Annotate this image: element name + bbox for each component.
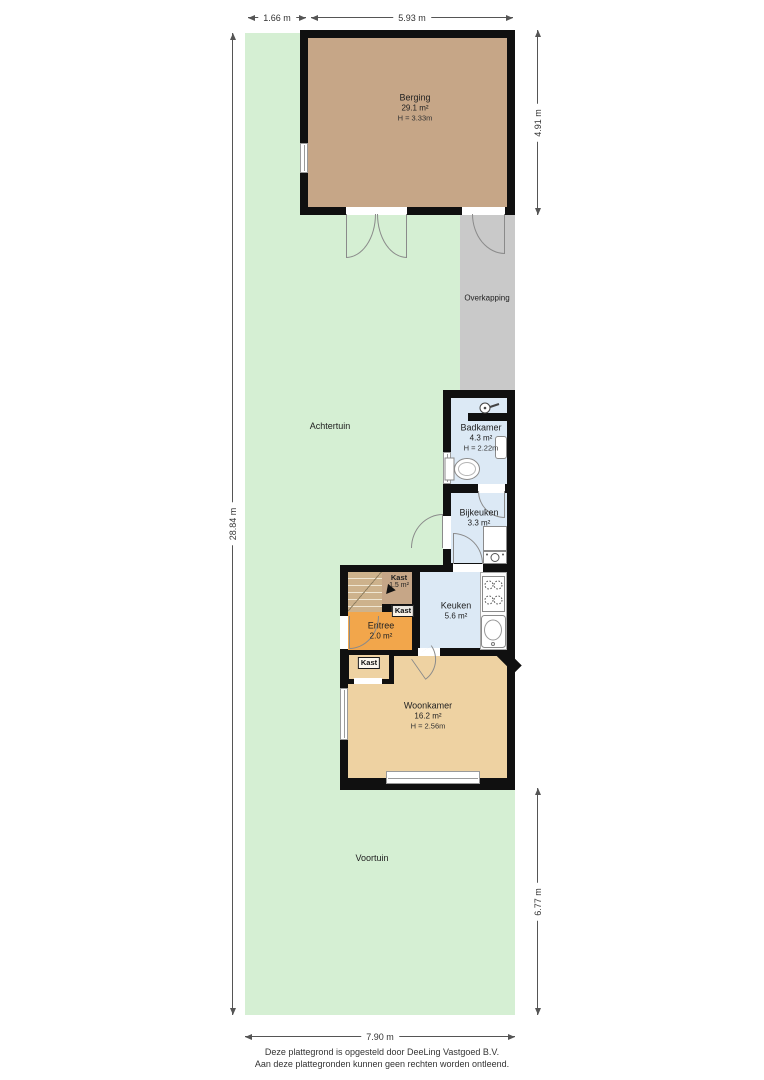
dimension-right-bottom-label: 6.77 m [533, 883, 543, 921]
shower-icon [478, 399, 500, 415]
dimension-top-right: 5.93 m [311, 17, 513, 18]
room-area: 29.1 m² [398, 104, 433, 114]
room-name: Bijkeuken [459, 507, 498, 518]
woonkamer-side-window [340, 688, 348, 740]
footer-disclaimer: Deze plattegrond is opgesteld door DeeLi… [0, 1046, 764, 1070]
floorplan: Berging 29.1 m² H = 3.33m Overkapping Ac… [0, 0, 764, 1080]
room-area: 16.2 m² [404, 712, 452, 722]
room-label-badkamer: Badkamer 4.3 m² H = 2.22m [460, 423, 501, 454]
label-achtertuin: Achtertuin [310, 421, 351, 431]
room-area: 1.5 m² [389, 582, 409, 591]
room-label-bijkeuken: Bijkeuken 3.3 m² [459, 507, 498, 528]
dimension-right-bottom: 6.77 m [537, 788, 538, 1015]
kast-onder-opening [354, 678, 382, 684]
room-label-berging: Berging 29.1 m² H = 3.33m [398, 93, 433, 124]
label-overkapping: Overkapping [464, 294, 509, 303]
dimension-left-label: 28.84 m [228, 503, 238, 546]
berging-window [300, 143, 308, 173]
sink-icon [481, 615, 506, 648]
room-area: 4.3 m² [460, 434, 501, 444]
chip-kast-onder: Kast [358, 657, 380, 669]
room-name: Woonkamer [404, 701, 452, 712]
woonkamer-front-window [386, 771, 480, 784]
chip-kast-midden: Kast [392, 605, 414, 617]
room-area: 2.0 m² [368, 632, 395, 642]
room-height: H = 3.33m [398, 114, 433, 123]
worktop [483, 526, 507, 551]
room-height: H = 2.56m [404, 722, 452, 731]
room-height: H = 2.22m [460, 444, 501, 453]
toilet-icon [444, 454, 482, 484]
dimension-bottom-label: 7.90 m [361, 1032, 399, 1042]
room-label-keuken: Keuken 5.6 m² [441, 600, 472, 621]
dimension-top-right-label: 5.93 m [393, 13, 431, 23]
bijkeuken-keuken-door-gap [453, 564, 483, 572]
staircase [348, 572, 382, 612]
room-name: Berging [398, 93, 433, 104]
dimension-top-left: 1.66 m [248, 17, 306, 18]
dimension-right-top: 4.91 m [537, 30, 538, 215]
dimension-right-top-label: 4.91 m [533, 104, 543, 142]
footer-line1: Deze plattegrond is opgesteld door DeeLi… [0, 1046, 764, 1058]
room-area: 3.3 m² [459, 519, 498, 529]
room-name: Badkamer [460, 423, 501, 434]
room-label-entree: Entree 2.0 m² [368, 620, 395, 641]
entree-front-door-gap [340, 616, 348, 649]
washing-machine-icon [483, 551, 507, 564]
footer-line2: Aan deze plattegronden kunnen geen recht… [0, 1058, 764, 1070]
dimension-left: 28.84 m [232, 33, 233, 1015]
staircase-stringer-line [348, 572, 382, 612]
dimension-bottom: 7.90 m [245, 1036, 515, 1037]
dimension-top-left-label: 1.66 m [258, 13, 296, 23]
room-label-woonkamer: Woonkamer 16.2 m² H = 2.56m [404, 701, 452, 732]
room-name: Entree [368, 620, 395, 631]
room-name: Keuken [441, 600, 472, 611]
room-area: 5.6 m² [441, 612, 472, 622]
label-voortuin: Voortuin [355, 853, 388, 863]
room-name: Kast [389, 573, 409, 582]
room-label-kast-trap: Kast 1.5 m² [389, 573, 409, 591]
bijkeuken-exterior-door-gap [443, 516, 451, 549]
stove-icon [482, 576, 505, 612]
